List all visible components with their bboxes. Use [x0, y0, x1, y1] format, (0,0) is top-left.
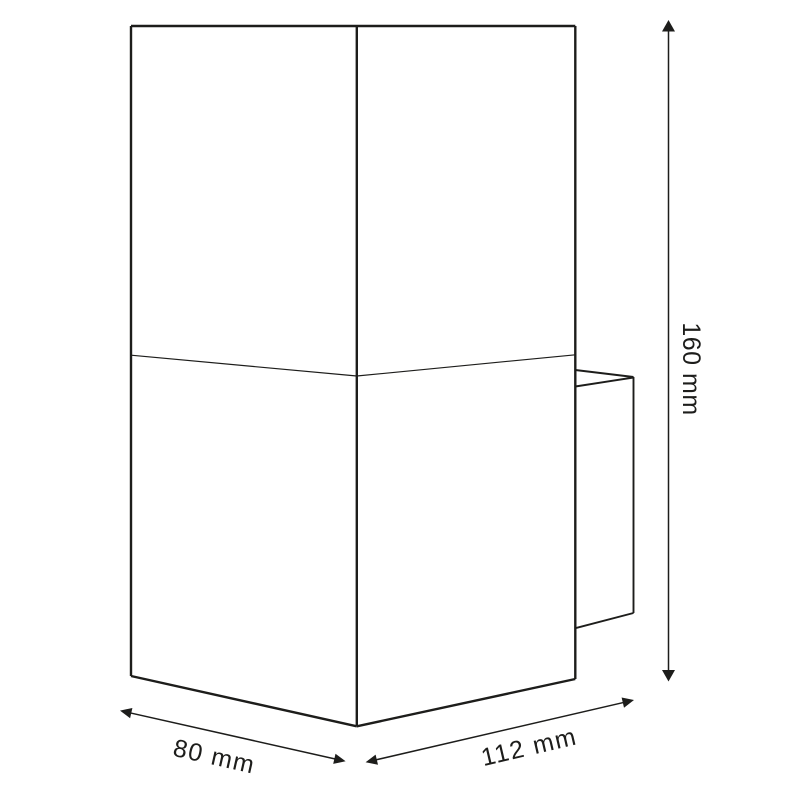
svg-text:160 mm: 160 mm [677, 322, 705, 415]
